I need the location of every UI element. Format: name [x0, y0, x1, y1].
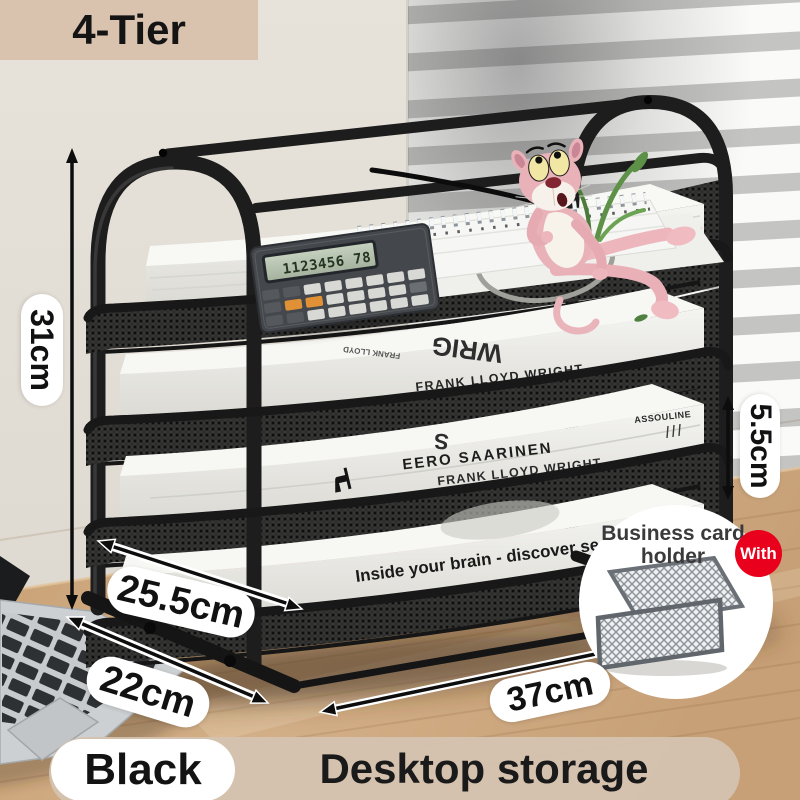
frame-screw	[644, 96, 652, 104]
frame-screw	[159, 149, 167, 157]
with-badge-label: With	[740, 544, 777, 564]
color-name-label: Black	[84, 745, 201, 795]
category-label: Desktop storage	[249, 745, 719, 793]
tray-gap-dimension-label: 5.5cm	[740, 394, 780, 498]
tier-banner: 4-Tier	[0, 0, 258, 60]
category-label-text: Desktop storage	[319, 745, 648, 792]
color-name-badge: Black	[51, 739, 235, 800]
base-knob	[224, 655, 236, 667]
with-badge: With	[735, 530, 782, 577]
base-knob	[144, 622, 156, 634]
product-image: WRIG FRANK LLOYD FRANK LLOYD WRIGHT S AS…	[0, 0, 800, 800]
height-value: 31cm	[24, 309, 61, 391]
tier-banner-label: 4-Tier	[72, 6, 186, 54]
tray-gap-value: 5.5cm	[743, 403, 777, 488]
height-dimension-label: 31cm	[21, 294, 63, 406]
